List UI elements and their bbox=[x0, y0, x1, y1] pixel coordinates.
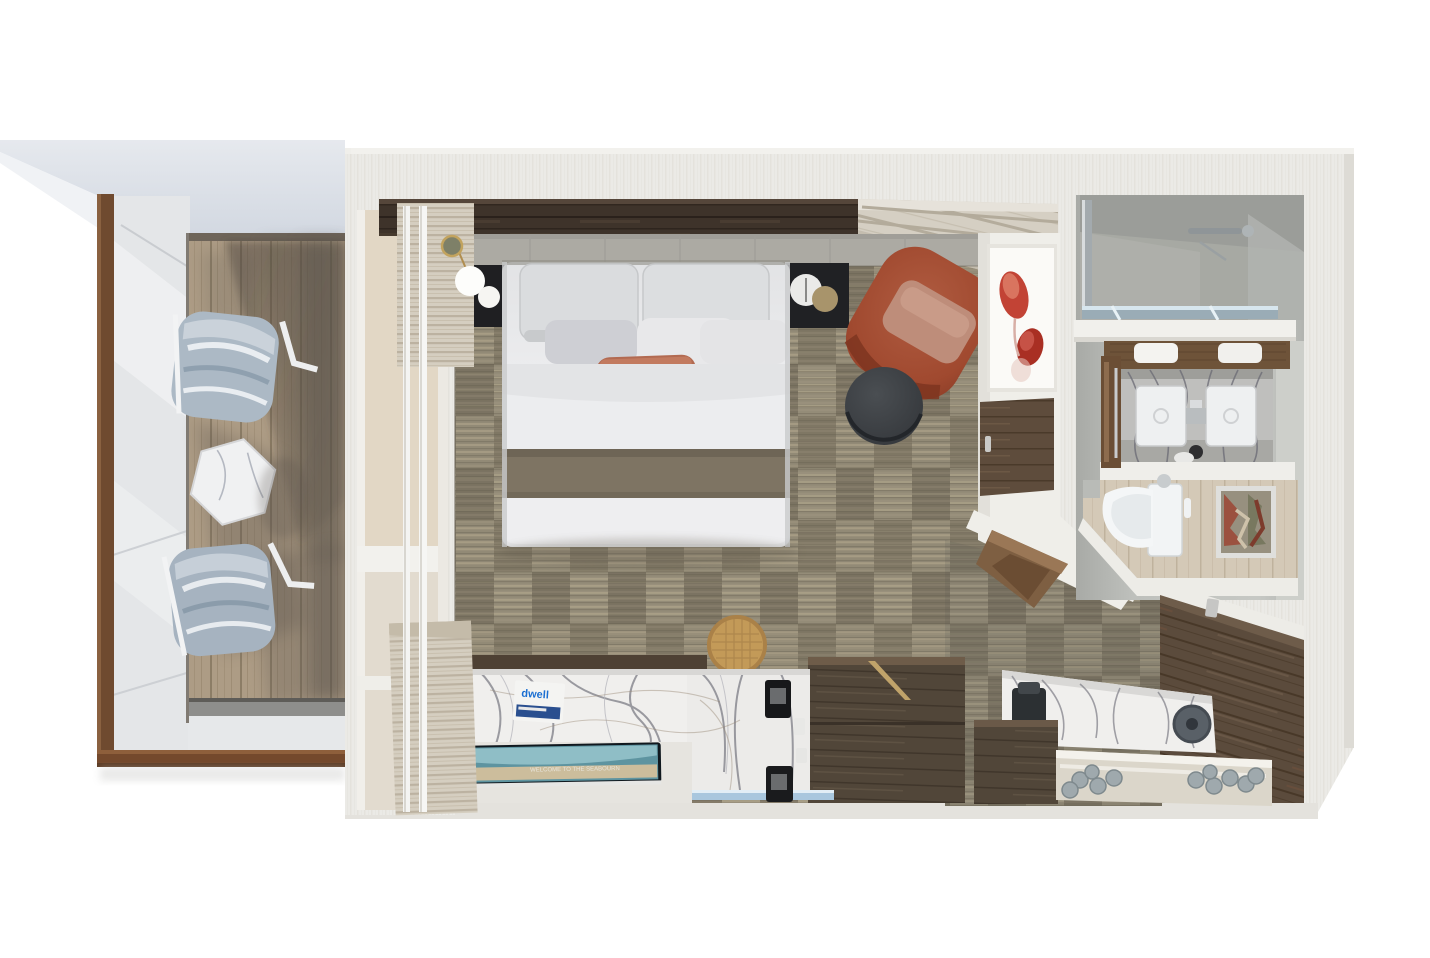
svg-text:dwell: dwell bbox=[521, 688, 549, 702]
